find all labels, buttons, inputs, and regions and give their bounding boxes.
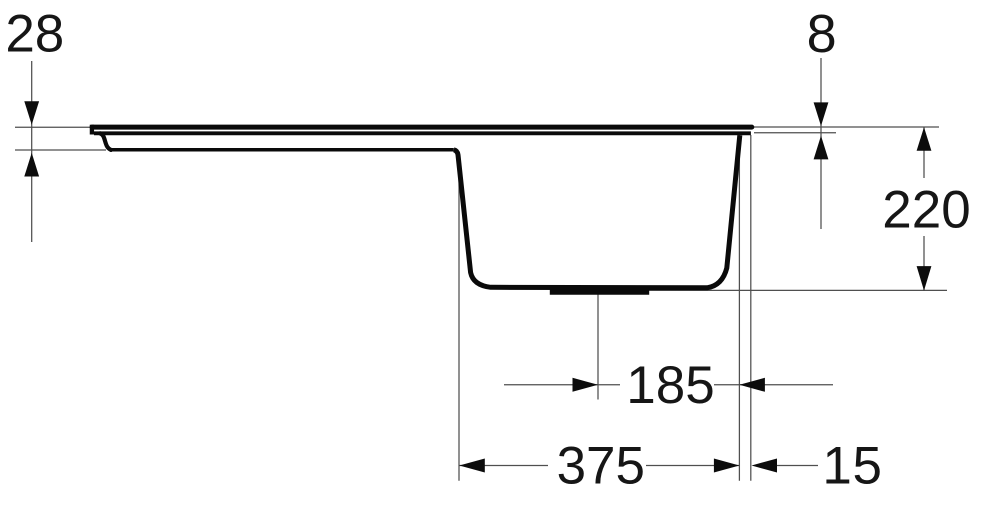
svg-text:220: 220 (882, 181, 970, 240)
svg-text:28: 28 (5, 5, 64, 64)
svg-text:15: 15 (822, 437, 882, 496)
svg-text:8: 8 (807, 4, 837, 64)
svg-text:185: 185 (626, 356, 714, 415)
svg-text:375: 375 (557, 437, 645, 496)
